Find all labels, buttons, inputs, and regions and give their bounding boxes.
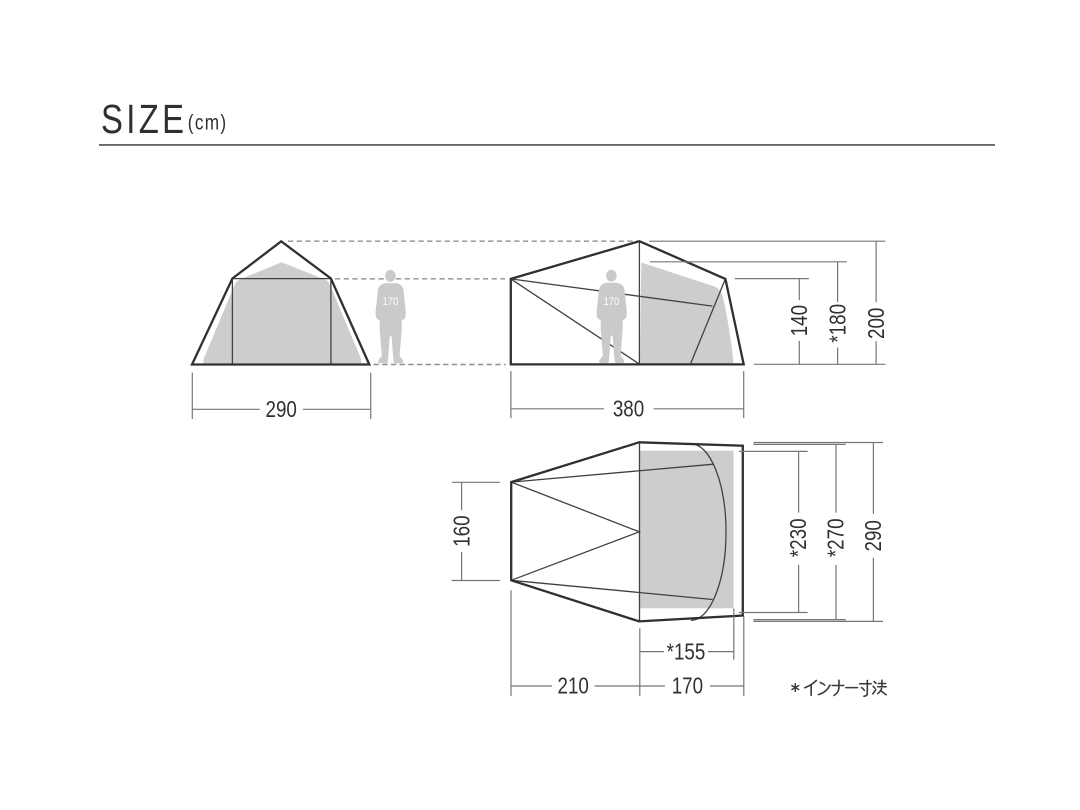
svg-text:290: 290 xyxy=(266,396,297,423)
svg-text:380: 380 xyxy=(613,396,644,423)
svg-text:200: 200 xyxy=(863,308,890,339)
svg-text:*270: *270 xyxy=(823,518,850,557)
svg-text:*230: *230 xyxy=(785,518,812,557)
svg-text:160: 160 xyxy=(448,515,475,546)
svg-text:170: 170 xyxy=(672,673,703,700)
svg-text:*155: *155 xyxy=(667,638,706,665)
svg-text:290: 290 xyxy=(860,520,887,551)
svg-text:SIZE: SIZE xyxy=(101,95,187,141)
svg-text:140: 140 xyxy=(786,305,813,336)
svg-text:*180: *180 xyxy=(824,304,851,343)
svg-text:(cm): (cm) xyxy=(188,112,228,135)
svg-text:210: 210 xyxy=(558,673,589,700)
